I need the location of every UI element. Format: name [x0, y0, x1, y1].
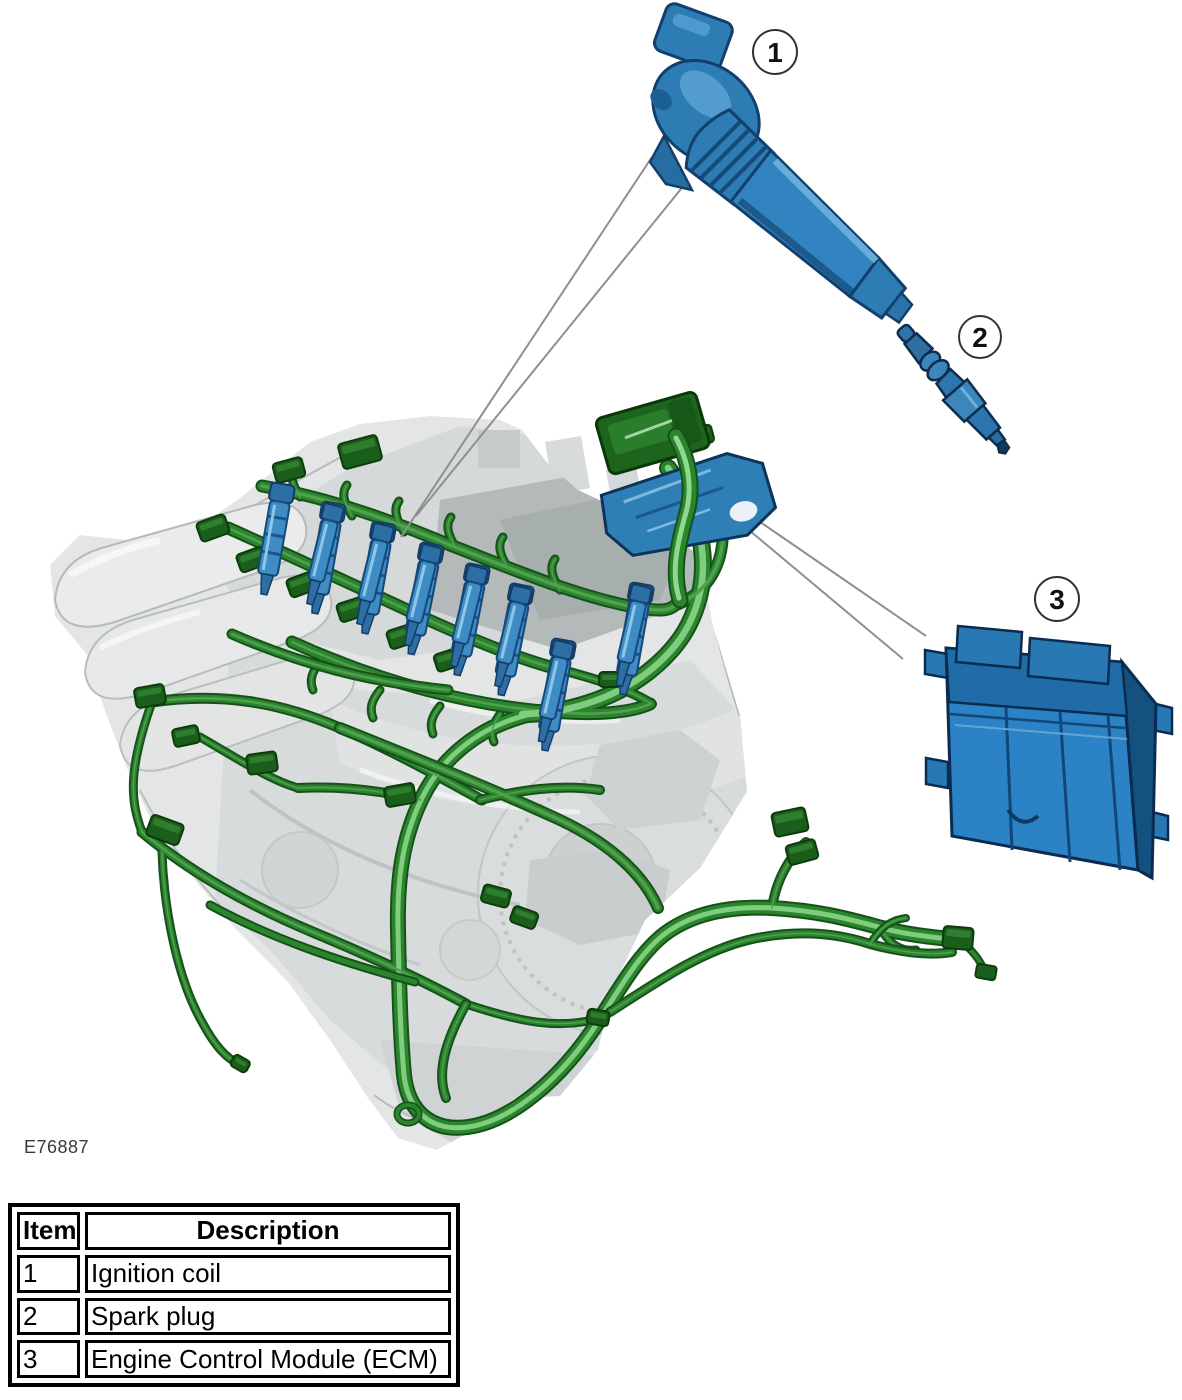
- svg-text:1: 1: [767, 37, 783, 68]
- svg-text:3: 3: [1049, 584, 1065, 615]
- svg-text:2: 2: [972, 322, 988, 353]
